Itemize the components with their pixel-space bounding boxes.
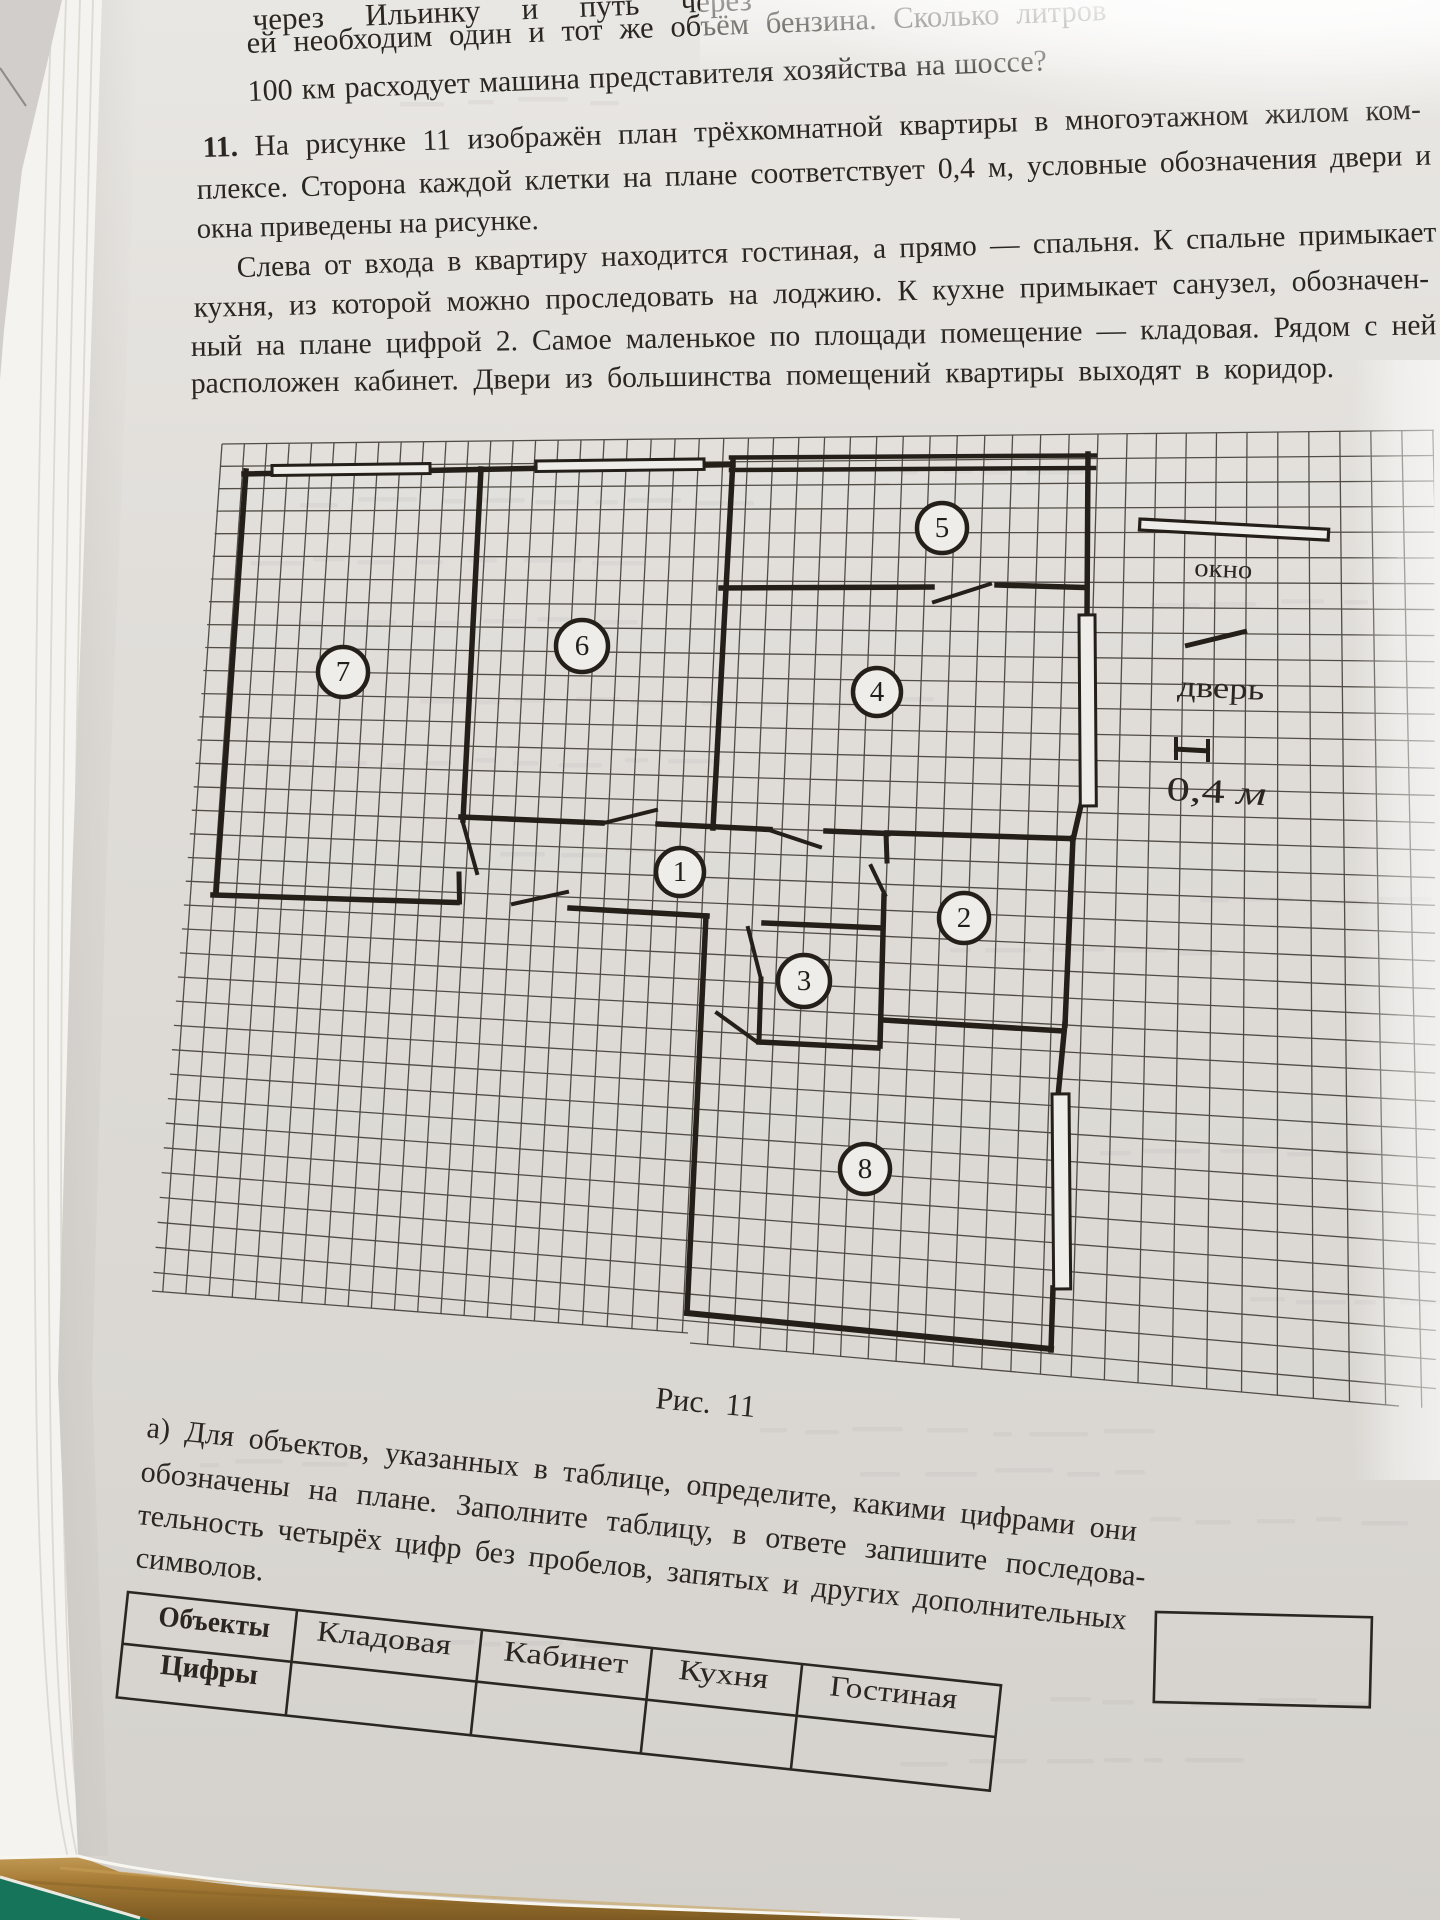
svg-text:3: 3 xyxy=(797,965,812,997)
svg-text:окно: окно xyxy=(1194,553,1253,585)
svg-text:0,4 м: 0,4 м xyxy=(1166,771,1268,813)
svg-text:6: 6 xyxy=(575,630,590,662)
svg-text:1: 1 xyxy=(673,856,688,888)
svg-text:5: 5 xyxy=(935,512,950,544)
svg-text:8: 8 xyxy=(858,1153,873,1185)
svg-text:4: 4 xyxy=(870,676,885,708)
svg-text:7: 7 xyxy=(336,656,351,688)
svg-text:дверь: дверь xyxy=(1177,670,1265,707)
svg-text:2: 2 xyxy=(957,902,972,934)
